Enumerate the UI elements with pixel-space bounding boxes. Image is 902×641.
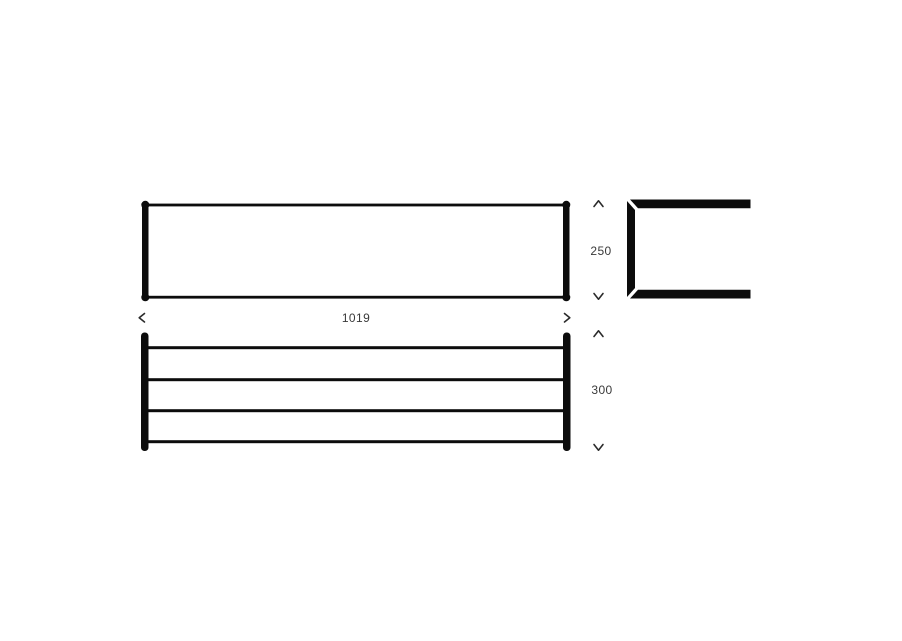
- dim-depth-label: 300: [591, 384, 612, 396]
- plan-left-post: [141, 333, 149, 452]
- height-arrow-down-icon: [594, 294, 603, 300]
- plan-rack-view: [141, 333, 571, 452]
- plan-rail-3: [149, 409, 564, 412]
- profile-top-flange: [630, 200, 751, 209]
- drawing-svg: [0, 0, 902, 641]
- corner-dot-bottom-right: [562, 293, 570, 301]
- profile-bottom-flange: [630, 290, 751, 299]
- side-profile-view: [627, 200, 751, 299]
- dimension-arrows: [139, 201, 603, 450]
- dim-width-label: 1019: [342, 312, 370, 324]
- depth-arrow-down-icon: [594, 445, 603, 451]
- front-top-rail: [148, 204, 564, 207]
- front-bottom-rail: [148, 296, 564, 299]
- profile-left-flange: [627, 201, 635, 297]
- front-right-post: [563, 202, 570, 299]
- technical-drawing-canvas: 1019 250 300: [0, 0, 902, 641]
- width-arrow-right-icon: [565, 314, 570, 323]
- front-elevation-view: [141, 201, 570, 301]
- plan-rail-1: [149, 346, 564, 349]
- corner-dot-top-left: [141, 201, 149, 209]
- corner-dot-top-right: [562, 201, 570, 209]
- plan-rail-2: [149, 378, 564, 381]
- plan-right-post: [563, 333, 571, 452]
- plan-rail-4: [149, 440, 564, 443]
- height-arrow-up-icon: [594, 201, 603, 207]
- corner-dot-bottom-left: [141, 293, 149, 301]
- depth-arrow-up-icon: [594, 331, 603, 337]
- front-left-post: [142, 202, 149, 299]
- dim-height-label: 250: [590, 245, 611, 257]
- width-arrow-left-icon: [139, 314, 144, 323]
